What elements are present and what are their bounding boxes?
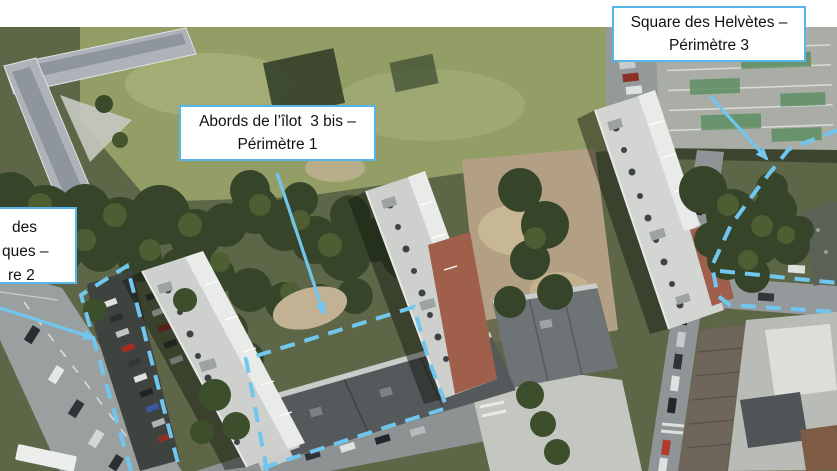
satellite-imagery <box>0 27 837 471</box>
label-perimetre-3: Square des Helvètes – Périmètre 3 <box>612 6 806 62</box>
label-perimetre-2-line2: ques – <box>2 240 75 264</box>
label-perimetre-1-line1: Abords de l’îlot 3 bis – <box>181 110 374 133</box>
label-perimetre-2: des ques – re 2 <box>0 207 77 284</box>
label-perimetre-2-line3: re 2 <box>8 264 75 288</box>
label-perimetre-3-line2: Périmètre 3 <box>614 34 804 57</box>
label-perimetre-3-line1: Square des Helvètes – <box>614 11 804 34</box>
annotated-aerial-map: Abords de l’îlot 3 bis – Périmètre 1 Squ… <box>0 0 837 471</box>
label-perimetre-2-line1: des <box>12 216 75 240</box>
bottom-right-buildings <box>678 312 837 471</box>
aerial-photo <box>0 0 837 471</box>
label-perimetre-1-line2: Périmètre 1 <box>181 133 374 156</box>
label-perimetre-1: Abords de l’îlot 3 bis – Périmètre 1 <box>179 105 376 161</box>
